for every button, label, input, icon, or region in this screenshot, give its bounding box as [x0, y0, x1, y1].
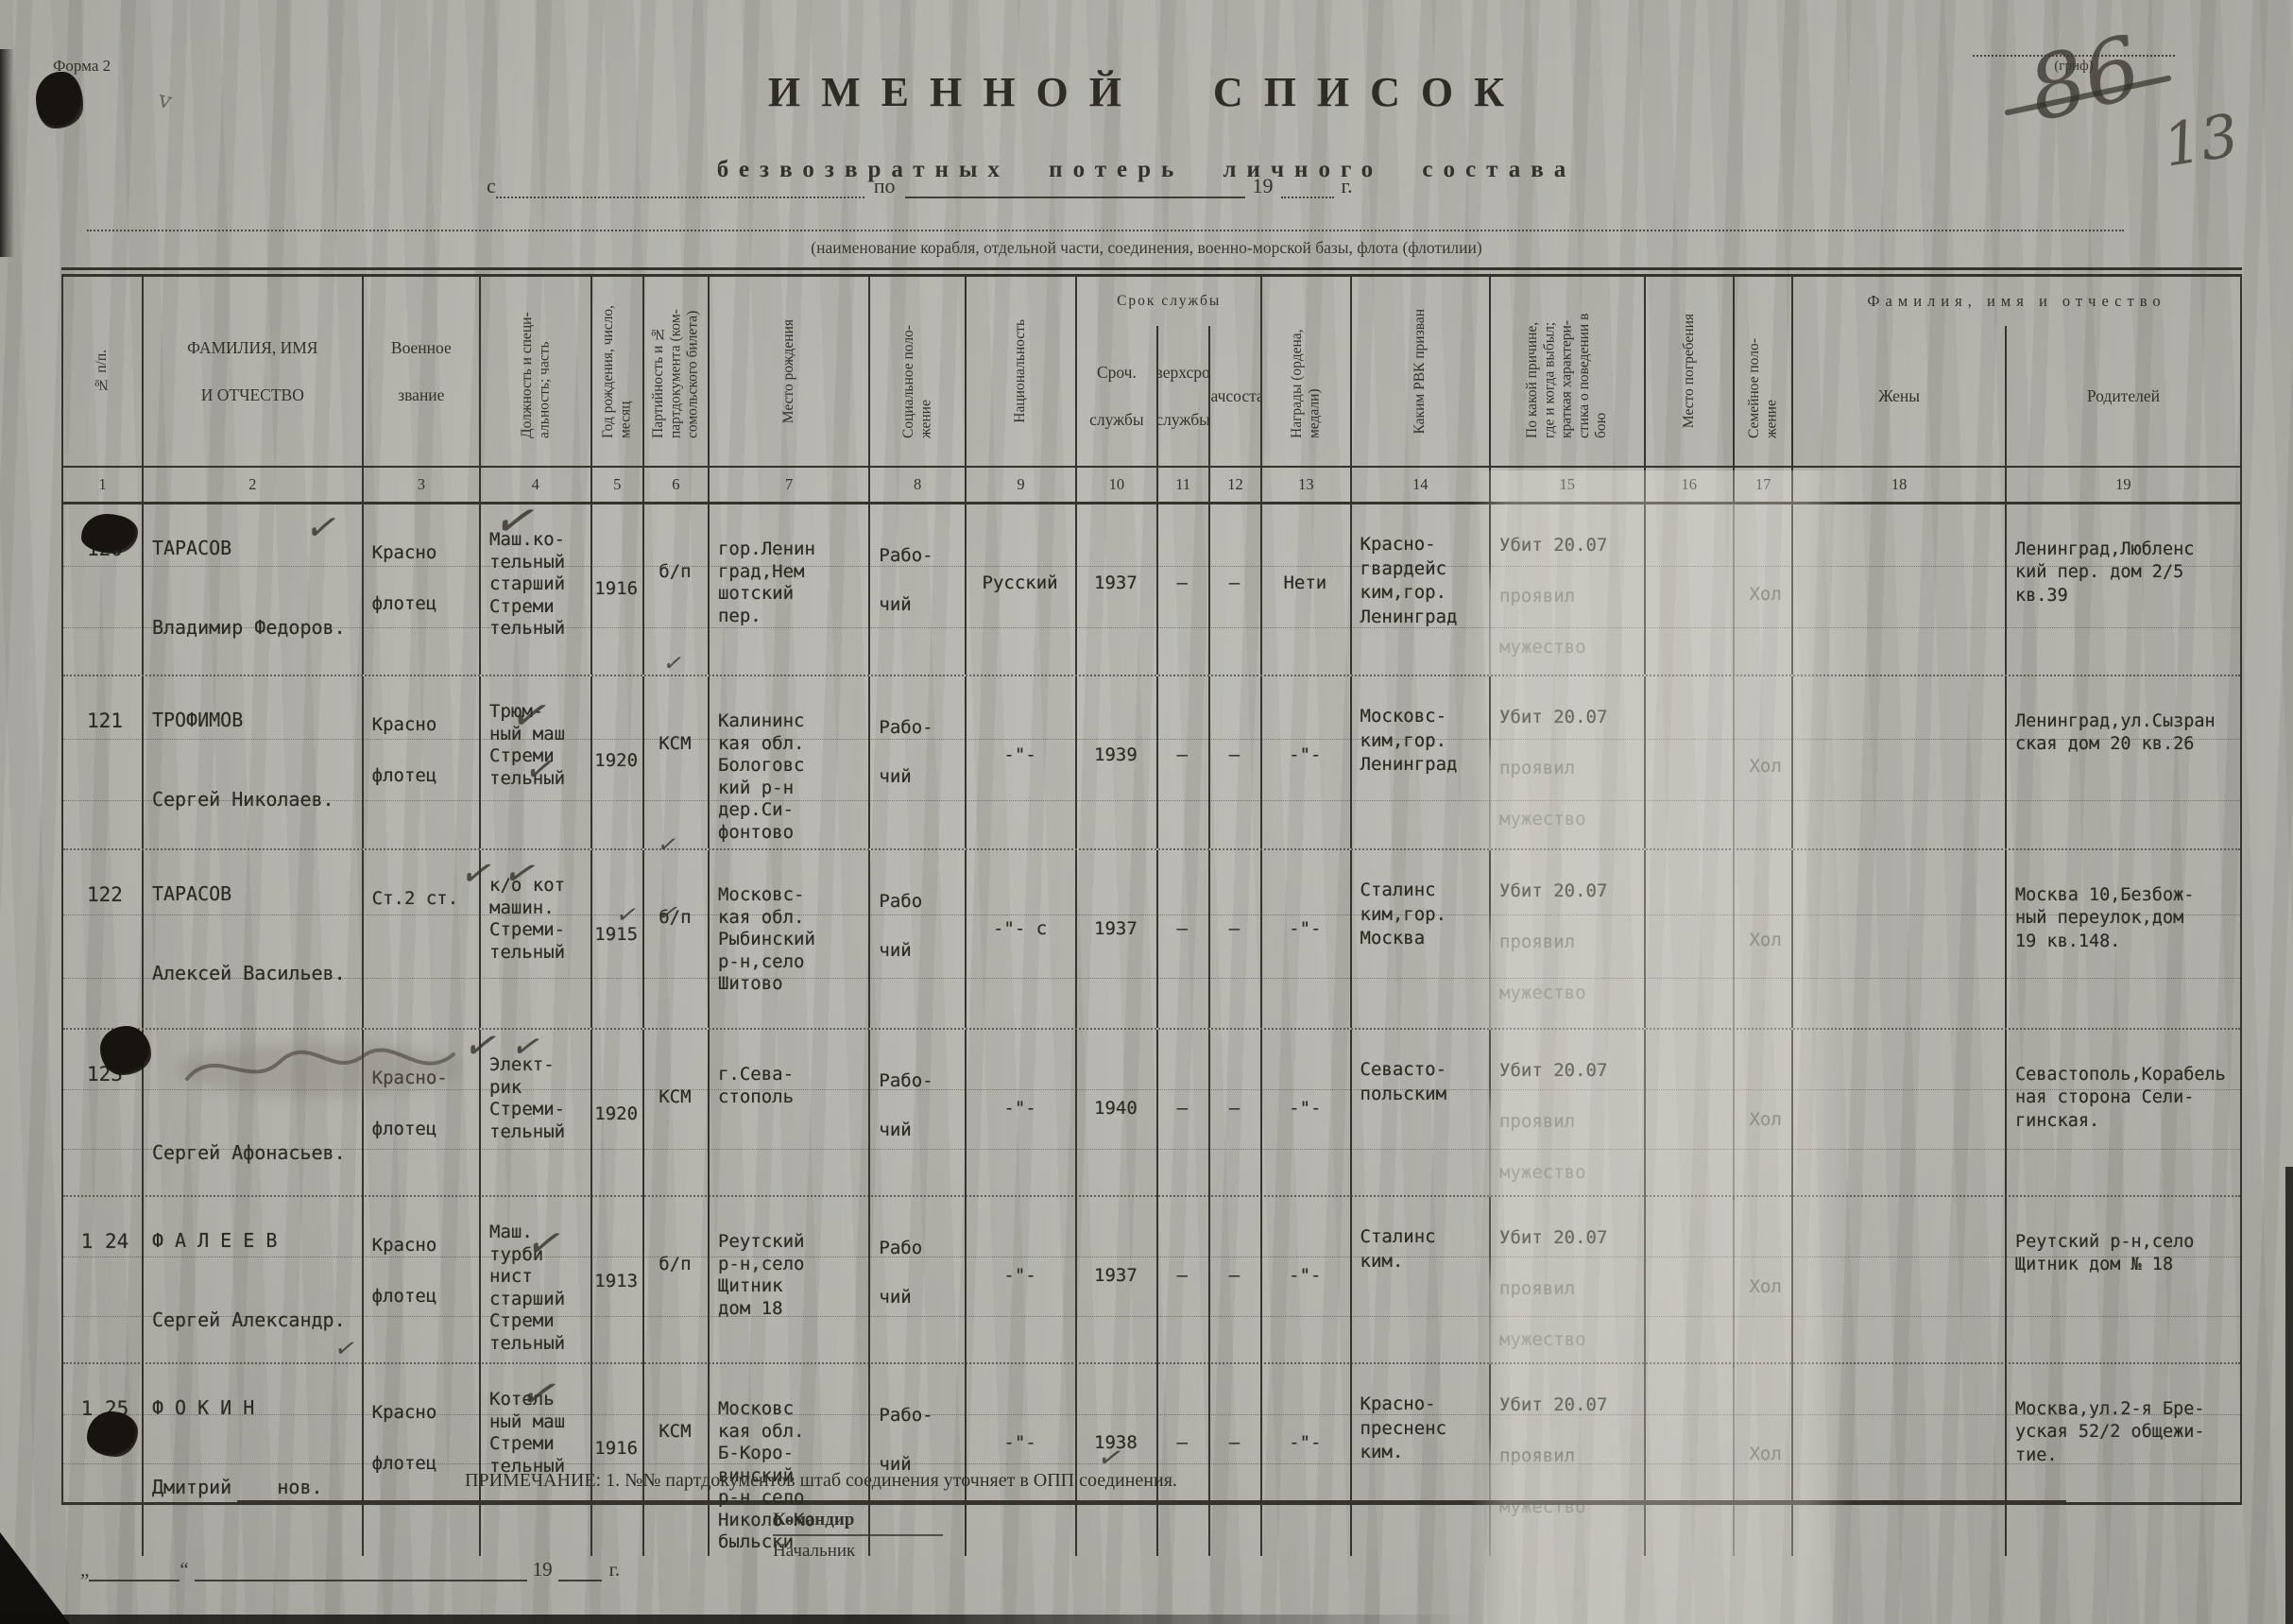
- cell-col16: [1644, 850, 1733, 1028]
- cell-col16: [1644, 1197, 1733, 1367]
- cell-col15: Убит 20.07 проявил мужество: [1489, 504, 1644, 675]
- date-to-blank: [905, 174, 1245, 198]
- column-header-6: Партийность и № партдокумента (ком- сомо…: [642, 277, 708, 466]
- table-row: 1 24Ф А Л Е Е В Сергей Александр.Красно …: [63, 1197, 2240, 1364]
- column-header-1: № п/п.: [63, 277, 142, 466]
- cell-col13: -"-: [1260, 1197, 1349, 1367]
- cell-col10: 1937: [1075, 504, 1155, 675]
- column-number: 6: [642, 468, 708, 502]
- column-header-18: Жены: [1791, 326, 2005, 466]
- bottom-year-blank: [558, 1557, 602, 1581]
- column-header-16: Место погребения: [1644, 277, 1733, 466]
- losses-table: № п/п.ФАМИЛИЯ, ИМЯ И ОТЧЕСТВОВоенное зва…: [61, 274, 2242, 1505]
- cell-col2: ТАРАСОВ Алексей Васильев.: [142, 850, 362, 1028]
- cell-col8: Рабо чий: [868, 850, 964, 1028]
- cell-col16: [1644, 1030, 1733, 1200]
- column-header-label: Награды (ордена, медали): [1289, 304, 1324, 438]
- cell-col4: Котель ный маш Стреми тельный: [479, 1364, 590, 1556]
- cell-col11: –: [1156, 1030, 1208, 1200]
- column-group-service-term: Срок службы: [1075, 277, 1260, 326]
- cell-col5: 1920: [590, 676, 642, 848]
- cell-col8: Рабо- чий: [868, 676, 964, 848]
- cell-col10: 1938: [1075, 1364, 1155, 1556]
- footnote: ПРИМЕЧАНИЕ: 1. №№ партдокументов штаб со…: [465, 1470, 1177, 1492]
- cell-col7: Московс кая обл. Б-Коро- винский р-н сел…: [708, 1364, 868, 1556]
- cell-col14: Московс- ким,гор. Ленинград: [1350, 676, 1489, 848]
- paper-hole: [36, 72, 83, 128]
- column-number: 15: [1489, 468, 1644, 502]
- cell-col7: Московс- кая обл. Рыбинский р-н,село Шит…: [708, 850, 868, 1028]
- cell-col10: 1940: [1075, 1030, 1155, 1200]
- column-header-13: Награды (ордена, медали): [1260, 277, 1349, 466]
- cell-col12: –: [1208, 850, 1260, 1028]
- scan-edge-shadow: [0, 1615, 1474, 1624]
- cell-col10: 1939: [1075, 676, 1155, 848]
- cell-col14: Красно- гвардейс ким,гор. Ленинград: [1350, 504, 1489, 675]
- cell-col5: 1913: [590, 1197, 642, 1367]
- column-header-12: Начсостав: [1208, 326, 1260, 466]
- column-header-label: По какой причине, где и когда выбыл; кра…: [1524, 304, 1610, 438]
- column-number: 19: [2005, 468, 2240, 502]
- cell-col9: Русский: [965, 504, 1076, 675]
- column-number: 11: [1156, 468, 1208, 502]
- unit-name-caption: (наименование корабля, отдельной части, …: [0, 238, 2293, 258]
- scan-corner-shadow: [0, 1532, 70, 1624]
- year-prefix: 19: [1253, 174, 1274, 198]
- column-number: 14: [1350, 468, 1489, 502]
- cell-col10: 1937: [1075, 1197, 1155, 1367]
- column-number: 7: [708, 468, 868, 502]
- cell-col2: ТАРАСОВ Владимир Федоров.: [142, 504, 362, 675]
- column-header-label: Каким РВК призван: [1412, 309, 1429, 434]
- column-header-4: Должность и специ- альность; часть: [479, 277, 590, 466]
- table-row: 121ТРОФИМОВ Сергей Николаев.Красно флоте…: [63, 676, 2240, 850]
- column-header-label: Сверхсроч. службы: [1156, 349, 1208, 443]
- group-label: Фамилия, имя и отчество: [1867, 292, 2165, 310]
- cell-col16: [1644, 1364, 1733, 1556]
- cell-col17: Хол: [1733, 1197, 1791, 1367]
- cell-col19: Севастополь,Корабель ная сторона Сели- г…: [2005, 1030, 2240, 1200]
- cell-col13: -"-: [1260, 850, 1349, 1028]
- column-number: 1: [63, 468, 142, 502]
- cell-col15: Убит 20.07 проявил мужество: [1489, 1197, 1644, 1367]
- cell-col15: Убит 20.07 проявил мужество: [1489, 850, 1644, 1028]
- cell-col4: Элект- рик Стреми- тельный: [479, 1030, 590, 1200]
- cell-col3: Ст.2 ст.: [362, 850, 479, 1028]
- bottom-date-line: „ “ 19 г.: [80, 1557, 620, 1581]
- column-header-15: По какой причине, где и когда выбыл; кра…: [1489, 277, 1644, 466]
- column-number: 8: [868, 468, 964, 502]
- cell-col15: Убит 20.07 проявил мужество: [1489, 1030, 1644, 1200]
- scanned-document-page: Форма 2 v ИМЕННОЙ СПИСОК безвозвратных п…: [0, 0, 2293, 1624]
- cell-col19: Москва 10,Безбож- ный переулок,дом 19 кв…: [2005, 850, 2240, 1028]
- year-suffix: г.: [1342, 174, 1353, 198]
- cell-col15: Убит 20.07 проявил мужество: [1489, 676, 1644, 848]
- table-row: 122ТАРАСОВ Алексей Васильев.Ст.2 ст.к/о …: [63, 850, 2240, 1030]
- column-header-17: Семейное поло- жение: [1733, 277, 1791, 466]
- cell-col7: Реутский р-н,село Щитник дом 18: [708, 1197, 868, 1367]
- cell-col12: –: [1208, 1030, 1260, 1200]
- column-header-label: Семейное поло- жение: [1746, 304, 1781, 438]
- cell-col17: Хол: [1733, 676, 1791, 848]
- table-row: 120ТАРАСОВ Владимир Федоров.Красно флоте…: [63, 504, 2240, 676]
- cell-col2: Ф О К И Н Дмитрий нов.: [142, 1364, 362, 1556]
- column-header-label: ФАМИЛИЯ, ИМЯ И ОТЧЕСТВО: [187, 324, 317, 419]
- quote-open: „: [80, 1558, 89, 1581]
- column-header-label: Место погребения: [1681, 314, 1698, 428]
- column-header-label: Социальное поло- жение: [900, 304, 935, 438]
- column-header-label: Место рождения: [780, 319, 797, 423]
- cell-col8: Рабо- чий: [868, 1364, 964, 1556]
- cell-col14: Севасто- польским: [1350, 1030, 1489, 1200]
- column-number: 4: [479, 468, 590, 502]
- bottom-year-suffix: г.: [609, 1558, 621, 1581]
- column-header-label: Родителей: [2087, 372, 2160, 419]
- cell-col1: 1 24: [63, 1197, 142, 1367]
- column-number: 17: [1733, 468, 1791, 502]
- table-header: № п/п.ФАМИЛИЯ, ИМЯ И ОТЧЕСТВОВоенное зва…: [63, 277, 2240, 466]
- cell-col8: Рабо чий: [868, 1197, 964, 1367]
- cell-col4: Трюм- ный маш Стреми тельный: [479, 676, 590, 848]
- paper-hole: [87, 1411, 138, 1457]
- column-number: 3: [362, 468, 479, 502]
- cell-col17: Хол: [1733, 850, 1791, 1028]
- column-header-label: № п/п.: [94, 350, 111, 393]
- table-row: 123 Сергей Афонасьев.Красно- флотецЭлект…: [63, 1030, 2240, 1197]
- unit-name-rule: [87, 230, 2124, 231]
- cell-col11: –: [1156, 1197, 1208, 1367]
- column-header-5: Год рождения, число, месяц: [590, 277, 642, 466]
- column-number: 5: [590, 468, 642, 502]
- column-header-label: Год рождения, число, месяц: [600, 304, 635, 438]
- cell-col11: –: [1156, 504, 1208, 675]
- cell-col18: [1791, 850, 2005, 1028]
- bottom-year-prefix: 19: [533, 1558, 553, 1581]
- column-header-11: Сверхсроч. службы: [1156, 326, 1208, 466]
- cell-col12: –: [1208, 1364, 1260, 1556]
- cell-col13: -"-: [1260, 676, 1349, 848]
- cell-col1: 121: [63, 676, 142, 848]
- scan-edge-shadow: [0, 49, 14, 257]
- column-group-fio: Фамилия, имя и отчество: [1791, 277, 2240, 326]
- table-body: 120ТАРАСОВ Владимир Федоров.Красно флоте…: [63, 504, 2240, 1502]
- day-blank: [89, 1557, 180, 1581]
- cell-col14: Сталинс ким.: [1350, 1197, 1489, 1367]
- column-number: 18: [1791, 468, 2005, 502]
- cell-col9: -"-: [965, 1030, 1076, 1200]
- handwritten-page-number: 13: [2159, 100, 2243, 179]
- column-header-9: Национальность: [965, 277, 1076, 466]
- handwritten-scribble-name: [181, 1035, 465, 1102]
- cell-col3: Красно флотец: [362, 1197, 479, 1367]
- cell-col13: Нети: [1260, 504, 1349, 675]
- cell-col6: б/п: [642, 850, 708, 1028]
- cell-col17: Хол: [1733, 504, 1791, 675]
- column-number: 2: [142, 468, 362, 502]
- cell-col11: –: [1156, 850, 1208, 1028]
- cell-col14: Красно- пресненс ким.: [1350, 1364, 1489, 1556]
- cell-col19: Ленинград,Любленс кий пер. дом 2/5 кв.39: [2005, 504, 2240, 675]
- cell-col8: Рабо- чий: [868, 1030, 964, 1200]
- column-header-2: ФАМИЛИЯ, ИМЯ И ОТЧЕСТВО: [142, 277, 362, 466]
- cell-col6: КСМ: [642, 1030, 708, 1200]
- cell-col12: –: [1208, 676, 1260, 848]
- cell-col16: [1644, 504, 1733, 675]
- cell-col14: Сталинс ким,гор. Москва: [1350, 850, 1489, 1028]
- column-header-label: Начсостав: [1208, 372, 1260, 419]
- cell-col3: Красно флотец: [362, 676, 479, 848]
- column-header-label: Должность и специ- альность; часть: [519, 304, 554, 438]
- column-number: 13: [1260, 468, 1349, 502]
- column-header-label: Национальность: [1012, 319, 1029, 423]
- cell-col18: [1791, 1364, 2005, 1556]
- cell-col12: –: [1208, 1197, 1260, 1367]
- cell-col5: 1920: [590, 1030, 642, 1200]
- cell-col19: Москва,ул.2-я Бре- уская 52/2 общежи- ти…: [2005, 1364, 2240, 1556]
- column-header-label: Жены: [1878, 372, 1920, 419]
- scan-edge-shadow: [2285, 1167, 2293, 1624]
- cell-col3: Красно флотец: [362, 1364, 479, 1556]
- cell-col16: [1644, 676, 1733, 848]
- cell-col6: КСМ: [642, 1364, 708, 1556]
- column-header-8: Социальное поло- жение: [868, 277, 964, 466]
- cell-col7: гор.Ленин град,Нем шотский пер.: [708, 504, 868, 675]
- paper-hole: [100, 1026, 151, 1075]
- ink-blot: [81, 514, 138, 554]
- column-number: 16: [1644, 468, 1733, 502]
- cell-col1: 1 25: [63, 1364, 142, 1556]
- column-header-7: Место рождения: [708, 277, 868, 466]
- cell-col8: Рабо- чий: [868, 504, 964, 675]
- cell-col4: Маш.ко- тельный старший Стреми тельный: [479, 504, 590, 675]
- cell-col6: б/п: [642, 504, 708, 675]
- date-from-blank: [496, 174, 864, 198]
- cell-col15: Убит 20.07 проявил мужество: [1489, 1364, 1644, 1556]
- cell-col7: г.Сева- стополь: [708, 1030, 868, 1200]
- table-top-double-rule: [61, 267, 2242, 270]
- column-header-14: Каким РВК призван: [1350, 277, 1489, 466]
- column-header-3: Военное звание: [362, 277, 479, 466]
- cell-col9: -"-: [965, 676, 1076, 848]
- column-header-label: Сроч. службы: [1077, 349, 1155, 443]
- cell-col19: Ленинград,ул.Сызран ская дом 20 кв.26: [2005, 676, 2240, 848]
- column-header-label: Партийность и № партдокумента (ком- сомо…: [650, 304, 702, 438]
- cell-col5: 1915: [590, 850, 642, 1028]
- cell-col11: –: [1156, 676, 1208, 848]
- cell-col2: Ф А Л Е Е В Сергей Александр.: [142, 1197, 362, 1367]
- cell-col18: [1791, 504, 2005, 675]
- cell-col19: Реутский р-н,село Щитник дом № 18: [2005, 1197, 2240, 1367]
- cell-col9: -"- с: [965, 850, 1076, 1028]
- cell-col18: [1791, 1030, 2005, 1200]
- page-title: ИМЕННОЙ СПИСОК: [0, 68, 2293, 116]
- cell-col9: -"-: [965, 1364, 1076, 1556]
- column-header-10: Сроч. службы: [1075, 326, 1155, 466]
- column-header-19: Родителей: [2005, 326, 2240, 466]
- cell-col6: КСМ: [642, 676, 708, 848]
- year-blank: [1281, 174, 1334, 198]
- cell-col17: Хол: [1733, 1364, 1791, 1556]
- group-label: Срок службы: [1117, 293, 1221, 310]
- cell-col13: -"-: [1260, 1364, 1349, 1556]
- column-number: 9: [965, 468, 1076, 502]
- period-date-line: с по 19 г.: [487, 174, 1353, 198]
- date-from-label: с: [487, 174, 496, 198]
- cell-col3: Красно флотец: [362, 504, 479, 675]
- table-column-numbers: 12345678910111213141516171819: [63, 466, 2240, 504]
- cell-col10: 1937: [1075, 850, 1155, 1028]
- cell-col7: Калининс кая обл. Бологовс кий р-н дер.С…: [708, 676, 868, 848]
- cell-col18: [1791, 676, 2005, 848]
- quote-close: “: [180, 1558, 188, 1581]
- cell-col6: б/п: [642, 1197, 708, 1367]
- cell-col11: –: [1156, 1364, 1208, 1556]
- cell-col12: –: [1208, 504, 1260, 675]
- cell-col1: 122: [63, 850, 142, 1028]
- cell-col17: Хол: [1733, 1030, 1791, 1200]
- cell-col18: [1791, 1197, 2005, 1367]
- cell-col4: к/о кот машин. Стреми- тельный: [479, 850, 590, 1028]
- handwritten-crossed-number: 86: [2019, 16, 2150, 141]
- cell-col4: Маш. турби нист старший Стреми тельный: [479, 1197, 590, 1367]
- column-header-label: Военное звание: [391, 324, 452, 419]
- date-to-label: по: [874, 174, 896, 198]
- column-number: 12: [1208, 468, 1260, 502]
- month-blank: [195, 1557, 527, 1581]
- cell-col5: 1916: [590, 1364, 642, 1556]
- cell-col13: -"-: [1260, 1030, 1349, 1200]
- cell-col2: ТРОФИМОВ Сергей Николаев.: [142, 676, 362, 848]
- column-number: 10: [1075, 468, 1155, 502]
- cell-col9: -"-: [965, 1197, 1076, 1367]
- cell-col5: 1916: [590, 504, 642, 675]
